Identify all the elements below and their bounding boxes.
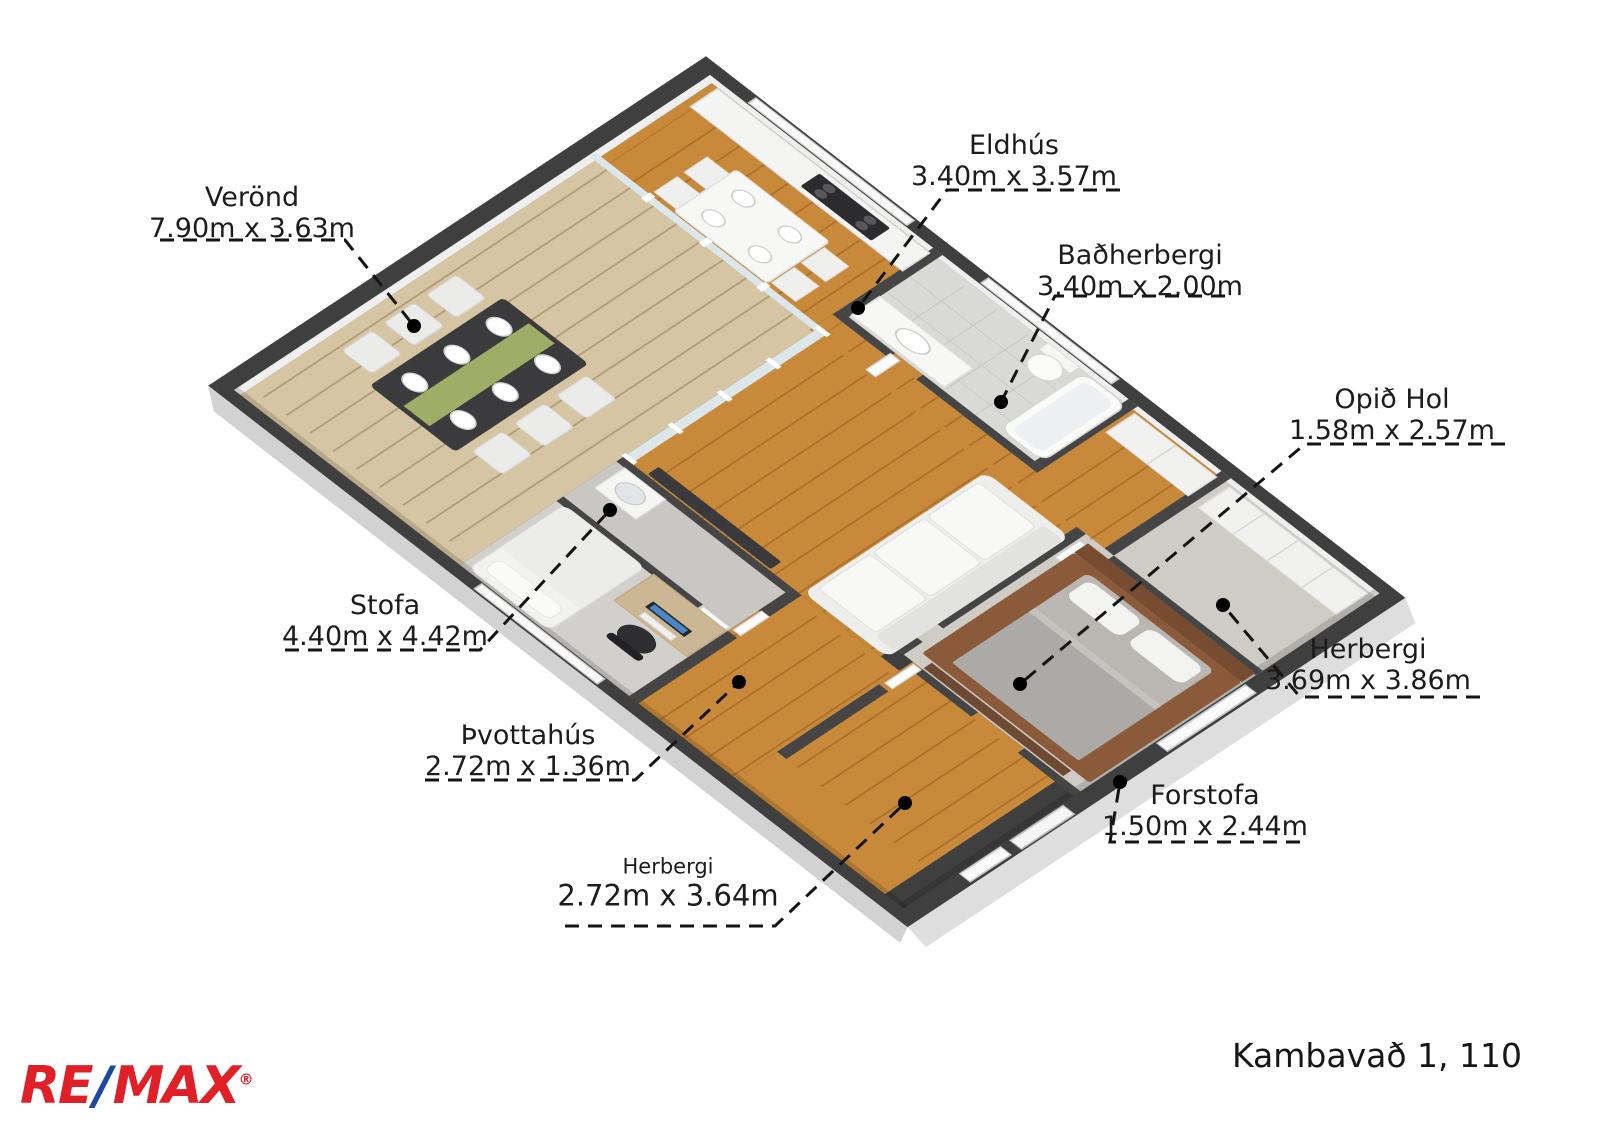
room-name: Þvottahús xyxy=(425,721,631,752)
room-label-stofa: Stofa 4.40m x 4.42m xyxy=(282,591,488,653)
property-address: Kambavað 1, 110 xyxy=(1232,1036,1522,1075)
leader-dot-thvottahus xyxy=(732,675,746,689)
room-name: Herbergi xyxy=(1265,635,1471,666)
leader-dot-badherbergi xyxy=(994,395,1008,409)
room-dims: 1.58m x 2.57m xyxy=(1289,416,1495,447)
remax-logo-re: RE xyxy=(20,1056,92,1116)
room-name: Forstofa xyxy=(1102,781,1308,812)
room-label-herbergi-nedri: Herbergi 2.72m x 3.64m xyxy=(557,856,778,913)
room-label-verond: Verönd 7.90m x 3.63m xyxy=(149,183,355,245)
room-label-herbergi-haegri: Herbergi 3.69m x 3.86m xyxy=(1265,635,1471,697)
leader-dot-eldhus xyxy=(851,301,865,315)
registered-trademark-icon: ® xyxy=(239,1071,254,1089)
room-name: Verönd xyxy=(149,183,355,214)
room-label-opid-hol: Opið Hol 1.58m x 2.57m xyxy=(1289,385,1495,447)
room-name: Herbergi xyxy=(557,856,778,880)
remax-logo: RE/MAX® xyxy=(20,1056,254,1116)
room-dims: 4.40m x 4.42m xyxy=(282,622,488,653)
room-label-eldhus: Eldhús 3.40m x 3.57m xyxy=(911,131,1117,193)
room-name: Stofa xyxy=(282,591,488,622)
room-label-thvottahus: Þvottahús 2.72m x 1.36m xyxy=(425,721,631,783)
room-dims: 2.72m x 3.64m xyxy=(557,879,778,912)
room-dims: 3.40m x 3.57m xyxy=(911,162,1117,193)
room-dims: 3.69m x 3.86m xyxy=(1265,666,1471,697)
room-label-forstofa: Forstofa 1.50m x 2.44m xyxy=(1102,781,1308,843)
floor-plan-page: Verönd 7.90m x 3.63m Eldhús 3.40m x 3.57… xyxy=(0,0,1600,1132)
room-name: Opið Hol xyxy=(1289,385,1495,416)
leader-dot-herbergi-haegri xyxy=(1216,598,1230,612)
floor-plan-svg xyxy=(0,0,1600,1132)
remax-logo-max: MAX xyxy=(113,1056,239,1116)
leader-dot-stofa xyxy=(603,503,617,517)
room-dims: 3.40m x 2.00m xyxy=(1037,272,1243,303)
leader-dot-opid-hol xyxy=(1013,677,1027,691)
leader-dot-herbergi-nedri xyxy=(898,796,912,810)
room-dims: 7.90m x 3.63m xyxy=(149,214,355,245)
room-dims: 2.72m x 1.36m xyxy=(425,752,631,783)
room-dims: 1.50m x 2.44m xyxy=(1102,812,1308,843)
room-label-badherbergi: Baðherbergi 3.40m x 2.00m xyxy=(1037,241,1243,303)
remax-logo-slash: / xyxy=(92,1056,113,1116)
room-name: Baðherbergi xyxy=(1037,241,1243,272)
room-name: Eldhús xyxy=(911,131,1117,162)
leader-dot-verond xyxy=(407,319,421,333)
